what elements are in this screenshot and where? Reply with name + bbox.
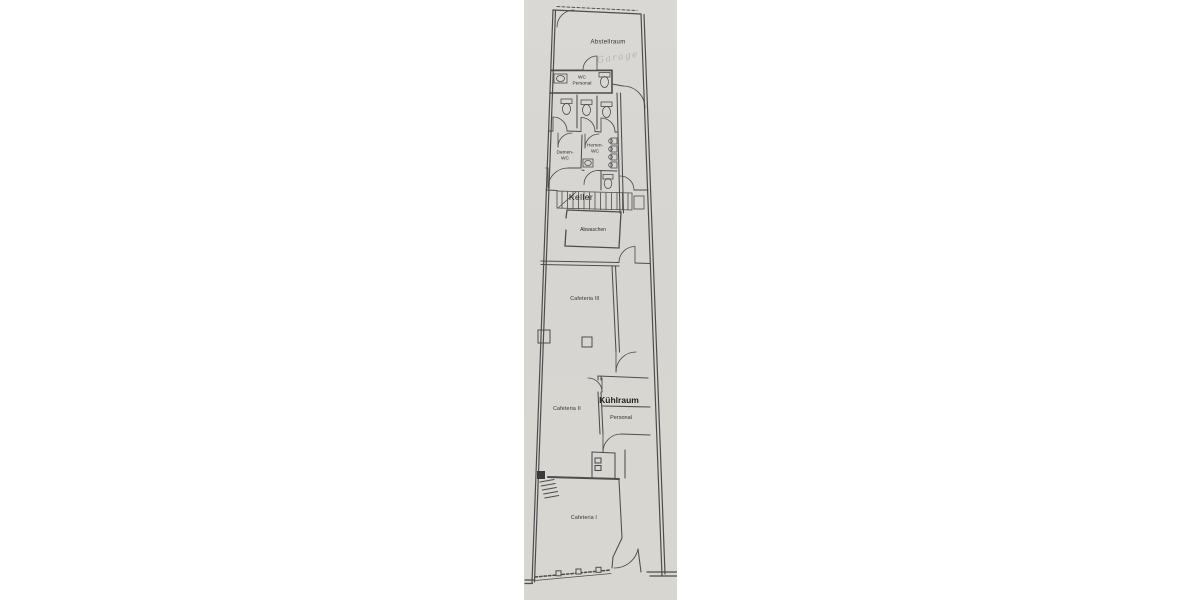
room-label-cafeteria-iii: Cafeteria III bbox=[570, 297, 599, 303]
room-label-cafeteria-ii: Cafeteria II bbox=[553, 407, 581, 413]
floor-plan-drawing bbox=[524, 0, 677, 600]
washbasin-fixture bbox=[554, 74, 567, 83]
room-label-kuehlraum: Kühlraum bbox=[599, 396, 639, 406]
room-label-abstellraum: Abstellraum bbox=[591, 40, 626, 47]
room-label-keller: Keller bbox=[569, 193, 593, 203]
column bbox=[582, 337, 592, 347]
room-label-wc-personal: WC Personal bbox=[572, 75, 592, 86]
toilet-fixture bbox=[601, 102, 612, 118]
entry-steps bbox=[537, 471, 559, 498]
toilet-fixture bbox=[581, 100, 592, 116]
washbasin-fixture bbox=[583, 159, 593, 167]
room-label-personal: Personal bbox=[610, 415, 632, 421]
toilet-fixture bbox=[561, 99, 572, 115]
toilet-fixture bbox=[603, 175, 613, 189]
urinal-fixture bbox=[609, 138, 617, 168]
room-label-herren-wc: Herren-WC bbox=[586, 143, 605, 154]
scanned-floor-plan: Abstellraum Garage WC Personal Damen-WC … bbox=[524, 0, 677, 600]
toilet-fixture bbox=[599, 73, 610, 88]
storefront-glazing bbox=[535, 567, 611, 577]
room-label-abwaschen: Abwaschen bbox=[580, 228, 606, 234]
room-label-cafeteria-i: Cafeteria I bbox=[571, 516, 597, 522]
room-label-damen-wc: Damen-WC bbox=[556, 150, 575, 161]
